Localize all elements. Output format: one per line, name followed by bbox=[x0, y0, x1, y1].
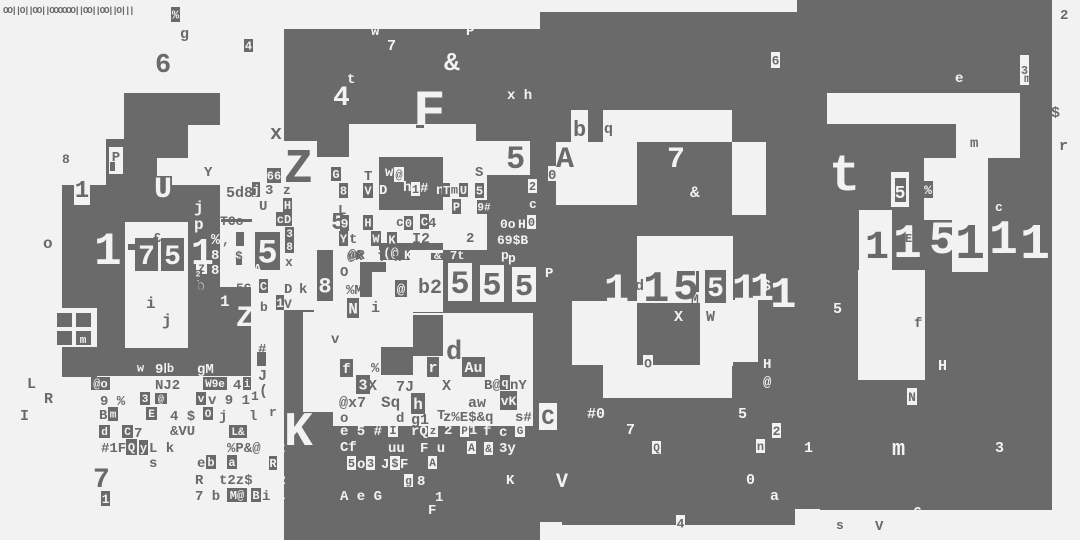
svg-text:L k: L k bbox=[149, 441, 174, 457]
svg-text:D: D bbox=[284, 282, 292, 298]
svg-text:@x7: @x7 bbox=[339, 395, 366, 412]
svg-text:e: e bbox=[955, 71, 963, 87]
svg-text:5: 5 bbox=[833, 301, 842, 318]
svg-text:W: W bbox=[372, 233, 380, 247]
svg-text:b: b bbox=[573, 118, 586, 143]
svg-text:0: 0 bbox=[405, 217, 412, 231]
svg-text:t: t bbox=[829, 147, 860, 206]
svg-text:q: q bbox=[501, 377, 508, 391]
svg-text:4: 4 bbox=[428, 216, 436, 232]
svg-text:Q: Q bbox=[653, 443, 660, 455]
svg-text:8: 8 bbox=[62, 152, 70, 167]
svg-text:e: e bbox=[197, 456, 205, 472]
svg-text:uu: uu bbox=[388, 441, 405, 457]
svg-text:A: A bbox=[556, 143, 574, 177]
svg-text:m: m bbox=[970, 136, 978, 152]
svg-text:1: 1 bbox=[770, 271, 796, 321]
svg-text:n: n bbox=[757, 440, 764, 454]
svg-text:1: 1 bbox=[94, 226, 122, 278]
svg-text:x h: x h bbox=[507, 88, 532, 104]
svg-text:5: 5 bbox=[164, 242, 181, 273]
svg-text:H: H bbox=[284, 199, 291, 213]
svg-text:3y: 3y bbox=[499, 441, 516, 457]
svg-text:8: 8 bbox=[211, 263, 219, 279]
svg-text:c: c bbox=[529, 197, 537, 212]
svg-text:X: X bbox=[674, 309, 683, 326]
svg-text:a: a bbox=[770, 488, 779, 505]
svg-text:0: 0 bbox=[528, 216, 535, 230]
svg-text:K: K bbox=[506, 473, 515, 489]
svg-text:z: z bbox=[430, 426, 437, 438]
svg-text:t: t bbox=[349, 232, 357, 248]
svg-text:Y: Y bbox=[204, 165, 213, 181]
svg-text:m: m bbox=[110, 410, 117, 422]
svg-text:@: @ bbox=[395, 169, 402, 183]
svg-text:Au: Au bbox=[464, 360, 482, 377]
svg-text:w: w bbox=[137, 362, 145, 376]
svg-text:l: l bbox=[249, 409, 257, 425]
svg-text:#0: #0 bbox=[587, 406, 605, 423]
svg-text:#: # bbox=[420, 181, 428, 197]
svg-text:F: F bbox=[413, 83, 445, 144]
svg-text:1: 1 bbox=[412, 183, 419, 197]
svg-text:5: 5 bbox=[929, 215, 957, 267]
svg-text:rQ: rQ bbox=[411, 424, 428, 440]
svg-text:V: V bbox=[556, 471, 568, 494]
svg-text:%: % bbox=[371, 361, 380, 377]
svg-text:D: D bbox=[379, 183, 387, 199]
svg-text:a: a bbox=[228, 456, 235, 470]
svg-text:2: 2 bbox=[277, 441, 285, 457]
svg-text:B@: B@ bbox=[484, 378, 501, 394]
svg-text:F: F bbox=[428, 503, 436, 519]
svg-text:1: 1 bbox=[277, 488, 285, 504]
svg-text:j: j bbox=[252, 183, 260, 198]
svg-text:@o: @o bbox=[93, 378, 107, 392]
svg-text:6: 6 bbox=[155, 51, 171, 81]
svg-text:8: 8 bbox=[211, 248, 219, 264]
svg-text:g: g bbox=[405, 476, 412, 488]
svg-text:I2: I2 bbox=[412, 231, 430, 248]
svg-text:4 $: 4 $ bbox=[170, 409, 195, 425]
svg-text:9#: 9# bbox=[477, 203, 491, 215]
svg-text:5: 5 bbox=[348, 457, 355, 471]
svg-text:cD: cD bbox=[277, 213, 291, 227]
svg-text:o: o bbox=[357, 457, 365, 473]
svg-text:8: 8 bbox=[286, 242, 293, 254]
svg-text:@R: @R bbox=[347, 249, 363, 264]
svg-text:,: , bbox=[222, 233, 230, 248]
svg-text:1: 1 bbox=[220, 293, 230, 311]
svg-text:66: 66 bbox=[267, 170, 281, 184]
svg-text:7 b: 7 b bbox=[195, 489, 220, 505]
svg-text:L&: L& bbox=[231, 427, 245, 439]
svg-text:W: W bbox=[706, 309, 715, 326]
svg-text:j: j bbox=[194, 199, 204, 217]
svg-text:NJ2: NJ2 bbox=[155, 378, 180, 394]
svg-text:&: & bbox=[690, 184, 700, 202]
svg-text:p: p bbox=[194, 216, 204, 234]
svg-text:b: b bbox=[196, 279, 204, 294]
svg-text:x: x bbox=[285, 255, 293, 270]
svg-text:7: 7 bbox=[138, 242, 155, 273]
svg-text:m: m bbox=[80, 335, 87, 347]
svg-text:N: N bbox=[348, 300, 358, 318]
svg-text:0: 0 bbox=[548, 168, 556, 184]
svg-text:T: T bbox=[443, 184, 450, 198]
svg-text:gM: gM bbox=[197, 362, 214, 378]
svg-text:Z: Z bbox=[284, 143, 313, 197]
svg-text:v: v bbox=[198, 394, 205, 406]
svg-text:P: P bbox=[545, 266, 553, 282]
svg-text:7t: 7t bbox=[450, 249, 464, 263]
svg-text:1: 1 bbox=[989, 214, 1018, 268]
svg-text:1: 1 bbox=[955, 217, 985, 274]
svg-text:4: 4 bbox=[245, 40, 252, 54]
svg-text:69$B: 69$B bbox=[497, 233, 528, 248]
svg-text:V: V bbox=[875, 519, 884, 535]
svg-text:5: 5 bbox=[476, 185, 483, 199]
svg-text:Z: Z bbox=[236, 302, 254, 336]
svg-text:3: 3 bbox=[358, 378, 367, 395]
svg-text:i: i bbox=[146, 295, 156, 313]
svg-text:y: y bbox=[140, 442, 147, 456]
svg-text:5G: 5G bbox=[236, 281, 252, 296]
svg-text:@: @ bbox=[763, 375, 772, 391]
svg-text:5: 5 bbox=[707, 274, 724, 305]
svg-text:s: s bbox=[149, 456, 157, 472]
svg-text:E: E bbox=[204, 183, 212, 199]
svg-text:A: A bbox=[429, 458, 436, 470]
svg-text:b2: b2 bbox=[418, 277, 442, 300]
svg-text:5: 5 bbox=[895, 184, 906, 204]
svg-text:%: % bbox=[172, 9, 180, 23]
svg-text:e 5 #: e 5 # bbox=[340, 424, 382, 440]
svg-text:E: E bbox=[148, 409, 155, 421]
svg-text:3: 3 bbox=[265, 183, 273, 199]
svg-text:o: o bbox=[43, 235, 53, 253]
svg-text:c: c bbox=[995, 200, 1003, 215]
svg-text:OO||O||OO||OOOOOO||OO||OO||O||: OO||O||OO||OOOOOO||OO||OO||O||| bbox=[3, 5, 133, 16]
svg-text:b: b bbox=[207, 456, 214, 470]
svg-text:1: 1 bbox=[276, 296, 284, 311]
svg-text:c: c bbox=[396, 215, 404, 230]
svg-text:k: k bbox=[299, 282, 307, 298]
svg-text:6: 6 bbox=[913, 505, 922, 522]
svg-text:p: p bbox=[508, 251, 516, 266]
svg-text:U: U bbox=[460, 184, 467, 198]
svg-text:B: B bbox=[99, 408, 108, 424]
svg-text:v 9 1: v 9 1 bbox=[208, 393, 250, 409]
svg-text:1: 1 bbox=[102, 492, 110, 507]
svg-text:6: 6 bbox=[772, 53, 780, 68]
svg-text:r: r bbox=[269, 405, 277, 420]
svg-text:R: R bbox=[44, 391, 53, 408]
svg-text:%M: %M bbox=[346, 283, 363, 299]
svg-text:s#: s# bbox=[515, 410, 532, 426]
svg-text:K: K bbox=[404, 248, 412, 263]
svg-text:5: 5 bbox=[482, 267, 501, 304]
svg-text:U: U bbox=[154, 173, 172, 207]
svg-text:x: x bbox=[270, 123, 282, 146]
svg-text:$: $ bbox=[1051, 105, 1060, 122]
svg-text:O: O bbox=[205, 409, 212, 421]
svg-text:L: L bbox=[27, 376, 36, 393]
svg-text:g: g bbox=[180, 26, 189, 43]
svg-text:i: i bbox=[371, 300, 380, 317]
svg-text:Os: Os bbox=[411, 198, 428, 214]
svg-text:8: 8 bbox=[318, 274, 331, 299]
svg-text:3: 3 bbox=[367, 457, 374, 471]
svg-text:8: 8 bbox=[340, 185, 347, 199]
svg-text:O: O bbox=[644, 356, 652, 371]
svg-text:Z: Z bbox=[434, 198, 442, 214]
svg-text:1: 1 bbox=[75, 178, 89, 205]
svg-text:%: % bbox=[924, 183, 932, 198]
svg-text:v: v bbox=[331, 332, 340, 348]
svg-text:1: 1 bbox=[604, 267, 629, 315]
svg-text:W9e: W9e bbox=[205, 379, 225, 391]
svg-text:1: 1 bbox=[469, 423, 477, 439]
svg-text:3: 3 bbox=[286, 229, 293, 241]
svg-text:f: f bbox=[483, 424, 491, 440]
svg-text:j: j bbox=[162, 312, 172, 330]
svg-text:B: B bbox=[252, 489, 259, 503]
svg-text:9: 9 bbox=[67, 185, 75, 200]
svg-text:1: 1 bbox=[804, 440, 813, 457]
svg-text:d: d bbox=[635, 278, 644, 295]
svg-text:(: ( bbox=[259, 383, 268, 400]
svg-text:C: C bbox=[124, 427, 131, 439]
svg-text:d: d bbox=[446, 338, 462, 368]
svg-text:O: O bbox=[340, 265, 348, 281]
svg-text:N: N bbox=[908, 390, 916, 405]
svg-text:A: A bbox=[254, 262, 262, 276]
svg-text:s: s bbox=[836, 518, 844, 533]
svg-text:w: w bbox=[385, 165, 394, 181]
svg-text:f: f bbox=[342, 362, 350, 378]
svg-text:&: & bbox=[444, 48, 460, 78]
svg-text:h: h bbox=[403, 180, 411, 196]
svg-text:2: 2 bbox=[444, 423, 452, 439]
svg-text:G: G bbox=[332, 168, 339, 182]
svg-text:5: 5 bbox=[738, 406, 747, 423]
svg-text:2: 2 bbox=[773, 424, 781, 439]
svg-text:C: C bbox=[541, 406, 554, 431]
svg-text:P: P bbox=[466, 24, 474, 40]
svg-text:m: m bbox=[1024, 72, 1031, 86]
svg-text:Y: Y bbox=[340, 233, 348, 247]
svg-text:$: $ bbox=[391, 457, 398, 471]
svg-text:A: A bbox=[468, 443, 475, 455]
svg-text:5: 5 bbox=[132, 377, 140, 393]
svg-text:M: M bbox=[691, 292, 699, 307]
svg-text:X: X bbox=[368, 378, 377, 395]
svg-text:j: j bbox=[219, 409, 227, 425]
svg-text:@: @ bbox=[397, 282, 406, 298]
svg-text:2: 2 bbox=[529, 180, 536, 194]
svg-text:F: F bbox=[400, 457, 408, 473]
svg-text:s: s bbox=[486, 186, 493, 200]
svg-text:9: 9 bbox=[341, 216, 349, 231]
svg-text:2: 2 bbox=[466, 231, 474, 247]
svg-text:1: 1 bbox=[643, 265, 669, 315]
svg-text:0: 0 bbox=[746, 472, 755, 489]
svg-text:2: 2 bbox=[196, 271, 201, 280]
svg-text:&: & bbox=[434, 249, 442, 263]
svg-text:m: m bbox=[451, 184, 458, 198]
svg-text:Sq: Sq bbox=[381, 394, 400, 412]
svg-text:i: i bbox=[262, 489, 270, 505]
svg-text:H: H bbox=[364, 217, 371, 231]
svg-text:F u: F u bbox=[420, 441, 445, 457]
svg-text:7: 7 bbox=[626, 422, 635, 439]
svg-text:1: 1 bbox=[1020, 217, 1050, 274]
svg-text:M@: M@ bbox=[230, 489, 244, 503]
svg-text:%: % bbox=[211, 232, 221, 249]
svg-text:q: q bbox=[604, 121, 613, 138]
svg-text:V: V bbox=[364, 185, 372, 199]
svg-text:r: r bbox=[1059, 138, 1068, 155]
svg-text:A e G: A e G bbox=[340, 489, 382, 505]
svg-text:H: H bbox=[763, 357, 771, 373]
svg-text:G: G bbox=[517, 426, 524, 438]
svg-text:4: 4 bbox=[677, 516, 685, 531]
svg-text:V: V bbox=[284, 297, 292, 312]
svg-text:c: c bbox=[499, 425, 507, 441]
svg-text:1: 1 bbox=[865, 226, 889, 271]
svg-text:R: R bbox=[269, 457, 277, 471]
svg-text:w: w bbox=[371, 24, 380, 40]
svg-text:&VU: &VU bbox=[170, 424, 195, 440]
svg-text:@: @ bbox=[158, 394, 164, 406]
svg-text:4: 4 bbox=[233, 378, 241, 394]
svg-text:f: f bbox=[914, 316, 922, 332]
svg-text:5d8: 5d8 bbox=[226, 185, 253, 202]
svg-text:X: X bbox=[442, 378, 451, 395]
svg-text:S: S bbox=[475, 165, 483, 181]
svg-text:C: C bbox=[260, 280, 267, 294]
svg-text:aw: aw bbox=[468, 395, 486, 412]
svg-text:3: 3 bbox=[995, 440, 1004, 457]
svg-text:5: 5 bbox=[506, 141, 525, 178]
svg-text:8: 8 bbox=[417, 474, 425, 490]
svg-text:5: 5 bbox=[450, 266, 469, 303]
svg-text:&: & bbox=[485, 444, 492, 456]
svg-text:T: T bbox=[364, 169, 372, 185]
svg-text:d: d bbox=[101, 427, 108, 439]
svg-text:P: P bbox=[461, 426, 468, 438]
svg-text:R: R bbox=[195, 473, 204, 489]
svg-text:i: i bbox=[244, 379, 251, 391]
svg-text:7: 7 bbox=[667, 143, 685, 177]
svg-text:b: b bbox=[260, 300, 268, 315]
svg-text:#1F: #1F bbox=[101, 441, 126, 457]
svg-text:Cf: Cf bbox=[340, 440, 357, 456]
svg-text:I: I bbox=[389, 424, 396, 438]
svg-text:4: 4 bbox=[333, 83, 350, 114]
svg-text:I: I bbox=[20, 408, 29, 425]
svg-text:7: 7 bbox=[387, 38, 396, 55]
svg-text:2: 2 bbox=[1060, 8, 1068, 24]
svg-text:1: 1 bbox=[251, 389, 259, 404]
svg-text:P: P bbox=[453, 201, 460, 215]
svg-text:b: b bbox=[167, 362, 174, 376]
svg-text:K: K bbox=[284, 406, 313, 460]
svg-text:E: E bbox=[905, 232, 912, 246]
svg-text:U: U bbox=[259, 199, 267, 215]
svg-text:m: m bbox=[892, 437, 905, 462]
svg-text:t2z$: t2z$ bbox=[219, 473, 253, 489]
svg-text:r: r bbox=[428, 360, 437, 377]
svg-text:Q: Q bbox=[128, 441, 135, 455]
svg-text:R: R bbox=[277, 473, 286, 489]
svg-text:5: 5 bbox=[515, 270, 534, 305]
svg-text:0o: 0o bbox=[500, 217, 516, 232]
svg-text:H: H bbox=[938, 358, 947, 375]
svg-text:vK: vK bbox=[501, 394, 517, 409]
svg-text:J: J bbox=[381, 457, 389, 473]
svg-text:3: 3 bbox=[142, 394, 149, 406]
svg-text:%P&@: %P&@ bbox=[227, 441, 261, 457]
svg-text:H: H bbox=[518, 217, 526, 232]
